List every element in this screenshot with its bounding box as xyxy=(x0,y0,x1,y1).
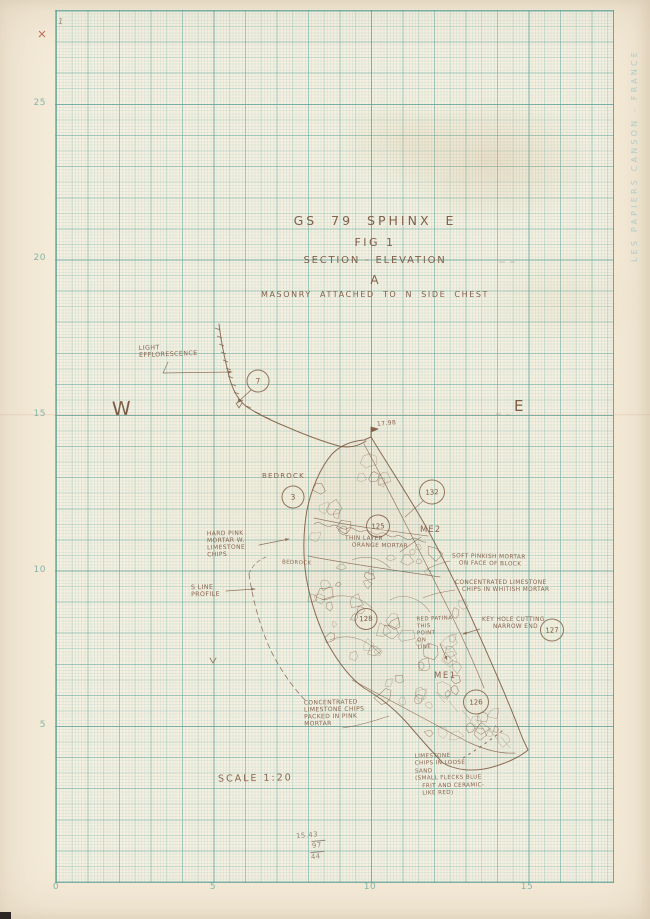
annotation-line: PROFILE xyxy=(191,591,220,599)
axis-label-bottom-10: 10 xyxy=(364,882,376,892)
title-line-3: SECTION - ELEVATION xyxy=(303,255,446,266)
compass-west: W xyxy=(112,398,132,421)
calc-line: 44 xyxy=(310,850,325,862)
axis-label-left-25: 25 xyxy=(26,98,46,108)
annotation-loose-sand: LIMESTONE CHIPS IN LOOSE SAND (SMALL FLE… xyxy=(415,752,485,797)
compass-east: E xyxy=(514,398,524,416)
annotation-pink-mortar: HARD PINK MORTAR W. LIMESTONE CHIPS xyxy=(207,530,246,559)
scanned-drawing-sheet: 25 20 15 10 5 0 5 10 15 LES PAPIERS CANS… xyxy=(0,0,650,919)
scale-note: SCALE 1:20 xyxy=(218,772,293,785)
axis-label-left-20: 20 xyxy=(26,253,46,263)
annotation-line: LIKE RED) xyxy=(415,789,484,798)
paper-brand-text: LES PAPIERS CANSON - FRANCE xyxy=(630,16,639,262)
zone-label-me2: ME2 xyxy=(420,525,441,535)
scan-background-corner xyxy=(0,912,11,919)
annotation-line: NARROW END xyxy=(482,624,545,631)
title-line-2: FIG 1 xyxy=(354,236,395,249)
annotation-line: LINE xyxy=(417,643,453,651)
title-line-5: MASONRY ATTACHED TO N SIDE CHEST xyxy=(261,290,489,299)
annotation-line: CONCENTRATED LIMESTONE xyxy=(455,580,549,587)
axis-label-bottom-15: 15 xyxy=(521,882,533,892)
axis-label-left-5: 5 xyxy=(26,720,46,730)
annotation-bedrock: BEDROCK xyxy=(262,472,305,480)
annotation-s-line-profile: S LINE PROFILE xyxy=(191,584,220,599)
annotation-bedrock-small: BEDROCK xyxy=(282,559,312,566)
annotation-red-patina: RED PATINA THIS POINT ON LINE xyxy=(416,615,453,651)
annotation-soft-pinkish: SOFT PINKISH MORTAR ON FACE OF BLOCK xyxy=(452,553,526,568)
pencil-calculation: 15.43 97 44 xyxy=(296,830,328,864)
red-check-mark xyxy=(39,31,45,37)
annotation-line: RED PATINA xyxy=(416,615,452,623)
annotation-line: CHIPS IN WHITISH MORTAR xyxy=(455,587,549,594)
title-line-1: GS 79 SPHINX E xyxy=(294,213,457,228)
title-line-4: A xyxy=(370,273,379,287)
axis-label-bottom-5: 5 xyxy=(210,882,216,892)
annotation-light-efflorescence: LIGHT EFFLORESCENCE xyxy=(139,343,198,360)
graph-paper-grid xyxy=(55,10,614,883)
annotation-line: KEY HOLE CUTTING xyxy=(482,617,545,624)
annotation-conc-whitish: CONCENTRATED LIMESTONE CHIPS IN WHITISH … xyxy=(455,580,549,594)
annotation-keyhole: KEY HOLE CUTTING NARROW END xyxy=(482,617,545,631)
annotation-line: CHIPS xyxy=(207,551,245,559)
zone-label-me1: ME1 xyxy=(434,671,457,681)
annotation-conc-pink: CONCENTRATED LIMESTONE CHIPS PACKED IN P… xyxy=(304,698,365,727)
annotation-line: PACKED IN PINK xyxy=(304,713,364,721)
axis-label-left-15: 15 xyxy=(26,409,46,419)
annotation-thin-layer: THIN LAYER ORANGE MORTAR xyxy=(345,535,408,550)
annotation-line: MORTAR xyxy=(304,720,364,728)
axis-label-bottom-0: 0 xyxy=(53,882,59,892)
annotation-line: ON FACE OF BLOCK xyxy=(452,560,526,568)
axis-label-left-10: 10 xyxy=(26,565,46,575)
annotation-line: ORANGE MORTAR xyxy=(345,542,408,550)
